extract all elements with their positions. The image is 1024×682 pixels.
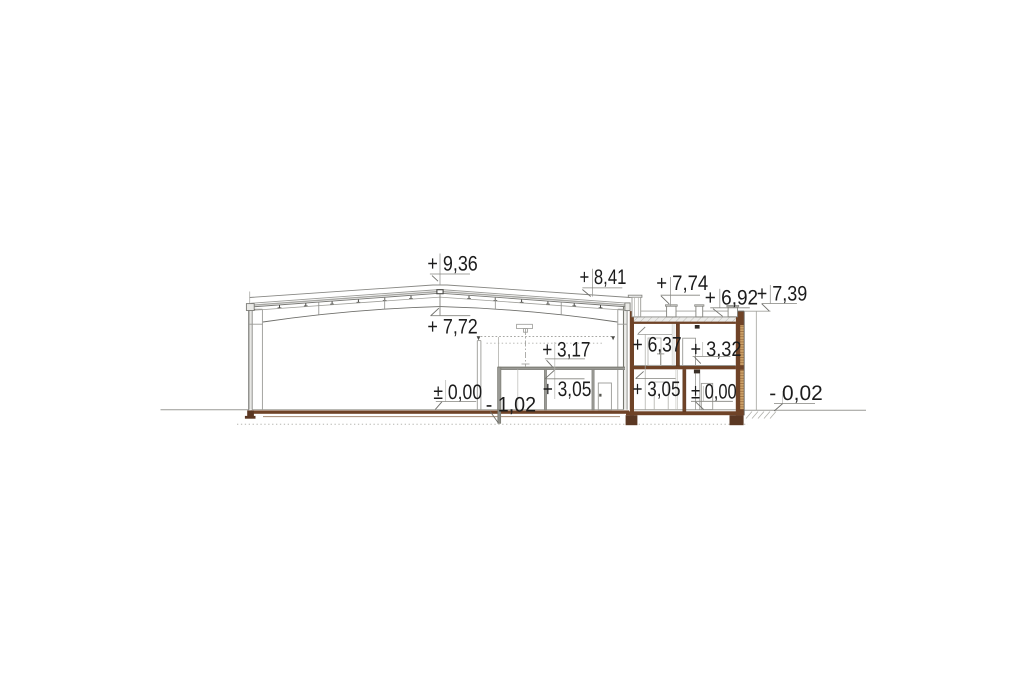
svg-text:+ 3,05: + 3,05 — [633, 378, 681, 401]
svg-text:+ 9,36: + 9,36 — [427, 253, 477, 276]
svg-text:+ 7,74: + 7,74 — [656, 272, 708, 295]
svg-text:+ 6,92: + 6,92 — [705, 287, 758, 310]
svg-text:+ 6,37: + 6,37 — [633, 333, 682, 356]
svg-text:± 0,00: ± 0,00 — [433, 381, 482, 404]
svg-text:± 0,00: ± 0,00 — [691, 381, 737, 404]
svg-text:+ 3,32: + 3,32 — [691, 338, 742, 361]
svg-text:+ 7,39: + 7,39 — [757, 283, 808, 306]
svg-text:- 1,02: - 1,02 — [486, 393, 536, 416]
svg-text:+ 8,41: + 8,41 — [580, 266, 627, 289]
svg-text:- 0,02: - 0,02 — [769, 382, 822, 405]
svg-text:+ 7,72: + 7,72 — [427, 316, 477, 339]
svg-text:+ 3,17: + 3,17 — [542, 339, 590, 362]
svg-text:+ 3,05: + 3,05 — [543, 378, 592, 401]
